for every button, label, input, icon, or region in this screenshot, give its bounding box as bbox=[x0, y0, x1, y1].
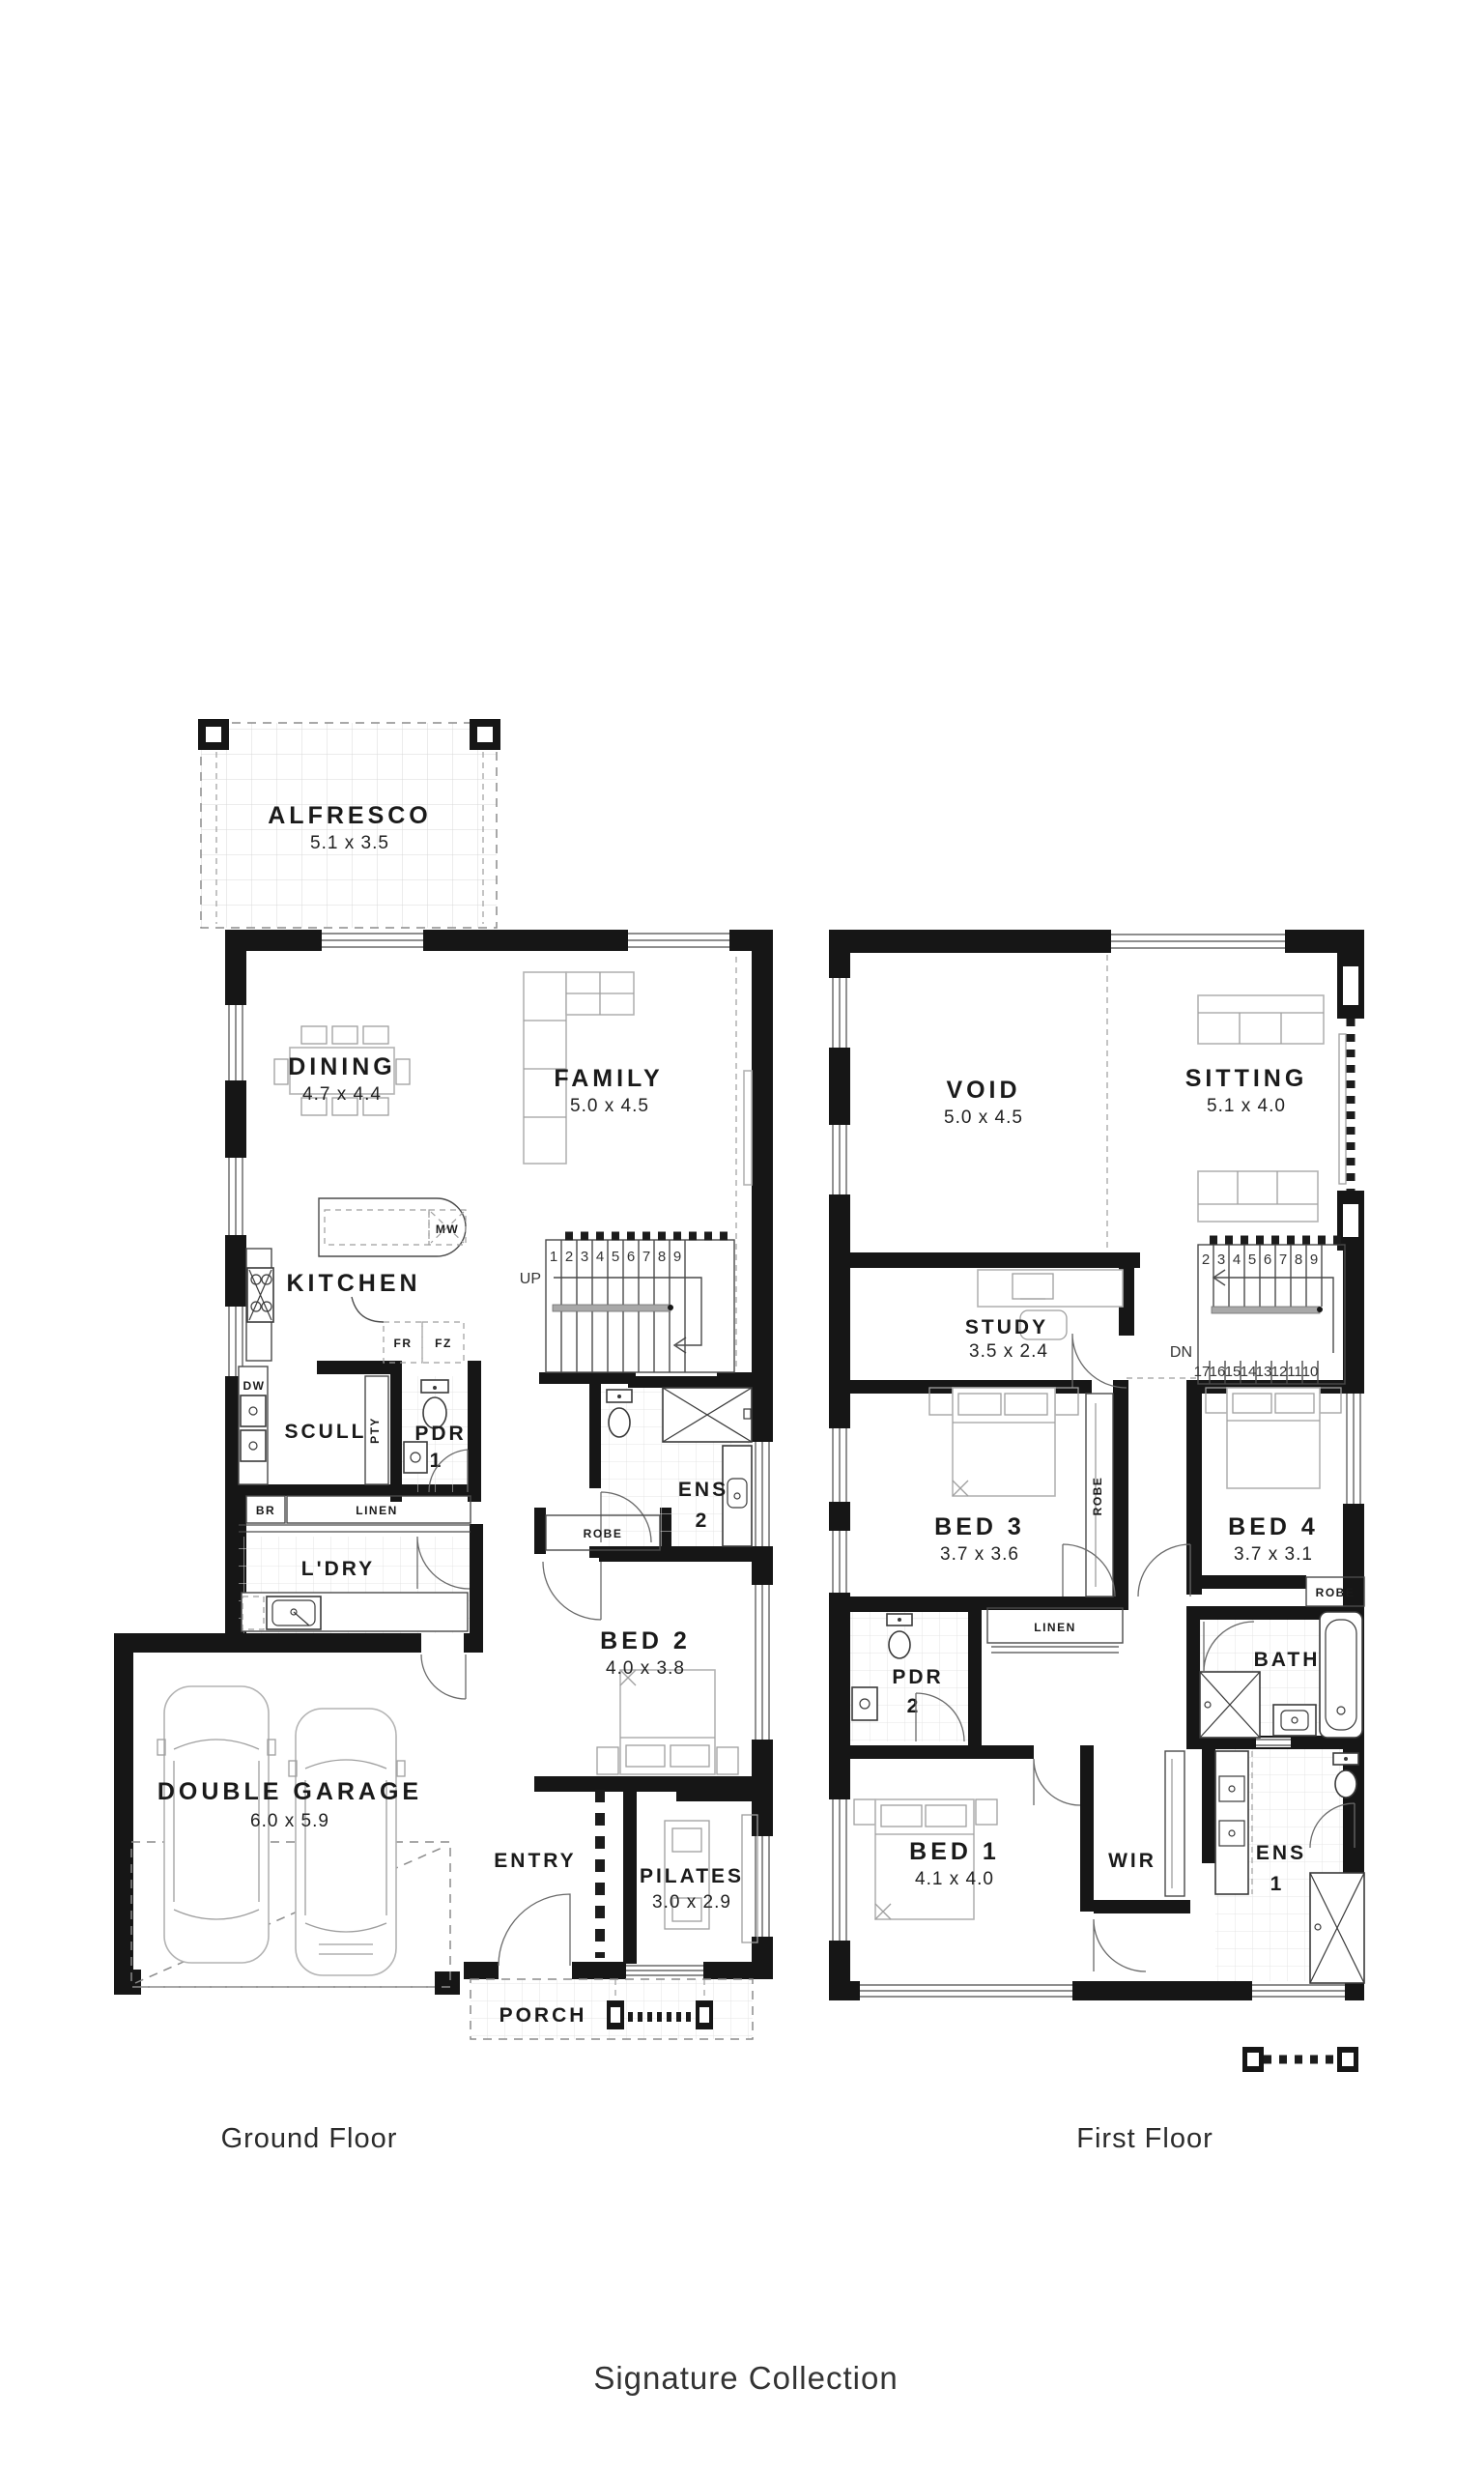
pantry-label: PTY bbox=[368, 1417, 382, 1444]
room-label-bed1: BED 1 bbox=[909, 1838, 1000, 1865]
collection-title: Signature Collection bbox=[593, 2360, 898, 2396]
room-label-pdr1: PDR bbox=[414, 1423, 466, 1445]
room-entry: ENTRY bbox=[494, 1850, 576, 1872]
first-floor-caption: First Floor bbox=[1076, 2123, 1213, 2154]
stair-tread-number: 12 bbox=[1271, 1364, 1288, 1380]
stair-tread-number: 4 bbox=[1233, 1251, 1241, 1268]
robe-label: ROBE bbox=[584, 1527, 623, 1540]
stair-tread-number: 2 bbox=[1202, 1251, 1210, 1268]
ground-floor-plan: ALFRESCO 5.1 x 3.5 bbox=[114, 719, 773, 2039]
room-number-ens1: 1 bbox=[1270, 1873, 1285, 1895]
toilet-icon bbox=[607, 1390, 632, 1437]
room-label-entry: ENTRY bbox=[494, 1850, 576, 1872]
room-pdr1: PDR 1 bbox=[402, 1376, 468, 1492]
bed3-door-icon bbox=[1063, 1544, 1115, 1597]
room-dims-void: 5.0 x 4.5 bbox=[944, 1108, 1023, 1128]
room-label-garage: DOUBLE GARAGE bbox=[157, 1778, 422, 1805]
stairs-first: 2 3 4 5 6 7 8 9 DN 17 16 15 14 13 12 11 … bbox=[1170, 1240, 1345, 1384]
sofa-icon bbox=[1198, 995, 1324, 1044]
linen-label: LINEN bbox=[356, 1504, 398, 1517]
room-garage: DOUBLE GARAGE 6.0 x 5.9 bbox=[114, 1633, 483, 1995]
stair-tread-number: 14 bbox=[1241, 1364, 1257, 1380]
stair-tread-number: 9 bbox=[1310, 1251, 1318, 1268]
toilet-icon bbox=[887, 1614, 912, 1658]
room-bed1: BED 1 4.1 x 4.0 bbox=[854, 1759, 1080, 1919]
stair-tread-number: 8 bbox=[1295, 1251, 1302, 1268]
garage-entry-door-icon bbox=[421, 1654, 466, 1699]
wardrobe-shelf bbox=[1165, 1751, 1184, 1896]
stair-tread-number: 4 bbox=[596, 1249, 604, 1265]
ground-floor-caption: Ground Floor bbox=[221, 2123, 398, 2154]
room-label-porch: PORCH bbox=[499, 2004, 587, 2027]
stair-tread-number: 10 bbox=[1302, 1364, 1319, 1380]
toilet-icon bbox=[1333, 1753, 1358, 1798]
room-dims-bed2: 4.0 x 3.8 bbox=[606, 1658, 685, 1679]
bed-icon bbox=[1206, 1388, 1341, 1488]
stair-direction-label: UP bbox=[520, 1271, 541, 1287]
room-label-alfresco: ALFRESCO bbox=[268, 802, 432, 829]
stair-walkline bbox=[554, 1278, 701, 1353]
room-dims-dining: 4.7 x 4.4 bbox=[302, 1084, 382, 1105]
room-label-laundry: L'DRY bbox=[301, 1558, 375, 1580]
room-void: VOID 5.0 x 4.5 bbox=[944, 955, 1107, 1251]
broom-label: BR bbox=[256, 1504, 275, 1517]
stair-tread-number: 3 bbox=[1217, 1251, 1225, 1268]
room-label-study: STUDY bbox=[965, 1316, 1048, 1338]
first-floor-plan: VOID 5.0 x 4.5 SITTING 5.1 x 4.0 bbox=[829, 930, 1364, 2072]
hall-door-icon bbox=[1138, 1544, 1190, 1597]
shower-icon bbox=[1310, 1873, 1364, 1983]
stairs-ground: 1 2 3 4 5 6 7 8 9 UP bbox=[520, 1236, 734, 1372]
room-label-wir: WIR bbox=[1108, 1850, 1156, 1872]
room-scullery: DW SCULL PTY bbox=[239, 1366, 388, 1484]
tv-icon bbox=[744, 1071, 752, 1185]
dishwasher-label: DW bbox=[243, 1379, 266, 1393]
stair-tread-number: 6 bbox=[627, 1249, 635, 1265]
laundry-sink-icon bbox=[267, 1597, 321, 1629]
floorplan-drawing: ALFRESCO 5.1 x 3.5 bbox=[0, 0, 1484, 2474]
floorplan-page: ALFRESCO 5.1 x 3.5 bbox=[0, 0, 1484, 2474]
shower-icon bbox=[1200, 1672, 1260, 1738]
linen-first: LINEN bbox=[987, 1608, 1123, 1653]
room-bed4: BED 4 3.7 x 3.1 ROBE bbox=[1206, 1388, 1364, 1606]
stair-tread-number: 6 bbox=[1264, 1251, 1271, 1268]
room-number-ens2: 2 bbox=[696, 1510, 710, 1532]
room-label-pilates: PILATES bbox=[640, 1865, 744, 1887]
room-bed2: BED 2 4.0 x 3.8 bbox=[543, 1562, 738, 1774]
stair-handrail bbox=[553, 1305, 671, 1311]
basin-icon bbox=[852, 1687, 877, 1720]
room-ens1: ENS 1 bbox=[1215, 1749, 1364, 1983]
bed-icon bbox=[929, 1388, 1078, 1496]
shower-icon bbox=[663, 1388, 752, 1442]
room-label-bed3: BED 3 bbox=[934, 1513, 1025, 1540]
car-icon bbox=[289, 1709, 405, 1975]
entry-door-icon bbox=[499, 1894, 570, 1966]
stair-tread-number: 3 bbox=[581, 1249, 588, 1265]
room-label-void: VOID bbox=[946, 1077, 1020, 1104]
room-label-ens1: ENS bbox=[1256, 1842, 1306, 1864]
room-ens2: ENS 2 bbox=[601, 1388, 752, 1546]
room-dims-family: 5.0 x 4.5 bbox=[570, 1096, 649, 1116]
porch-threshold bbox=[624, 2012, 696, 2022]
room-label-bath: BATH bbox=[1254, 1649, 1321, 1671]
st air-tread-number: 5 bbox=[1248, 1251, 1256, 1268]
stair-tread-number: 16 bbox=[1210, 1364, 1226, 1380]
room-label-bed4: BED 4 bbox=[1228, 1513, 1319, 1540]
vanity-icon bbox=[1273, 1705, 1316, 1736]
room-dims-sitting: 5.1 x 4.0 bbox=[1207, 1096, 1286, 1116]
wir-door-icon bbox=[1094, 1919, 1146, 1971]
robe-label: ROBE bbox=[1316, 1586, 1356, 1599]
room-dims-bed4: 3.7 x 3.1 bbox=[1234, 1544, 1313, 1565]
bed1-door-icon bbox=[1034, 1759, 1080, 1805]
bed-icon bbox=[597, 1670, 738, 1774]
stair-tread-number: 13 bbox=[1256, 1364, 1272, 1380]
vanity-icon bbox=[1215, 1751, 1248, 1894]
room-dims-bed1: 4.1 x 4.0 bbox=[915, 1869, 994, 1889]
room-label-sitting: SITTING bbox=[1185, 1065, 1308, 1092]
sofa-icon bbox=[1198, 1171, 1318, 1222]
room-label-ens2: ENS bbox=[678, 1479, 728, 1501]
room-laundry: L'DRY bbox=[239, 1537, 470, 1633]
room-pdr2: PDR 2 bbox=[850, 1612, 968, 1741]
room-porch: PORCH bbox=[471, 1979, 753, 2039]
room-family: FAMILY 5.0 x 4.5 bbox=[524, 972, 752, 1185]
robe-label: ROBE bbox=[1091, 1477, 1104, 1516]
bed2-door-icon bbox=[543, 1562, 601, 1620]
room-number-pdr2: 2 bbox=[907, 1695, 922, 1717]
room-label-bed2: BED 2 bbox=[600, 1627, 691, 1654]
room-dims-pilates: 3.0 x 2.9 bbox=[652, 1892, 731, 1913]
stair-handrail bbox=[1212, 1307, 1320, 1313]
stair-tread-number: 5 bbox=[612, 1249, 619, 1265]
freezer-label: FZ bbox=[435, 1337, 452, 1350]
stair-tread-number: 1 bbox=[550, 1249, 557, 1265]
room-dims-bed3: 3.7 x 3.6 bbox=[940, 1544, 1019, 1565]
stair-tread-number: 9 bbox=[673, 1249, 681, 1265]
room-alfresco: ALFRESCO 5.1 x 3.5 bbox=[198, 719, 500, 928]
stair-tread-number: 11 bbox=[1287, 1364, 1302, 1380]
stair-direction-label: DN bbox=[1170, 1344, 1192, 1361]
room-dims-garage: 6.0 x 5.9 bbox=[250, 1811, 329, 1831]
stair-tread-number: 17 bbox=[1194, 1364, 1211, 1380]
room-label-dining: DINING bbox=[288, 1053, 396, 1080]
room-pilates: PILATES 3.0 x 2.9 bbox=[640, 1815, 757, 1942]
room-dims-alfresco: 5.1 x 3.5 bbox=[310, 833, 389, 853]
room-sitting: SITTING 5.1 x 4.0 bbox=[1185, 995, 1346, 1222]
room-label-scullery: SCULL bbox=[285, 1421, 367, 1443]
room-label-kitchen: KITCHEN bbox=[286, 1270, 420, 1297]
stair-tread-number: 8 bbox=[658, 1249, 666, 1265]
bathtub-icon bbox=[1320, 1612, 1362, 1738]
room-study: STUDY 3.5 x 2.4 bbox=[965, 1270, 1127, 1388]
room-dining: DINING 4.7 x 4.4 bbox=[274, 1026, 410, 1115]
basin-icon bbox=[404, 1442, 427, 1473]
toilet-icon bbox=[421, 1380, 448, 1428]
stair-tread-number: 2 bbox=[565, 1249, 573, 1265]
study-door-icon bbox=[1072, 1334, 1127, 1388]
stair-tread-number: 15 bbox=[1225, 1364, 1241, 1380]
stair-tread-number: 7 bbox=[1279, 1251, 1287, 1268]
stair-tread-number: 7 bbox=[642, 1249, 650, 1265]
fridge-label: FR bbox=[394, 1337, 413, 1350]
room-bed3: BED 3 3.7 x 3.6 ROBE bbox=[929, 1388, 1190, 1597]
linen-label: LINEN bbox=[1034, 1621, 1076, 1634]
room-kitchen: MW FR FZ KITCHEN bbox=[246, 1198, 466, 1363]
room-label-family: FAMILY bbox=[554, 1065, 663, 1092]
microwave-label: MW bbox=[436, 1223, 459, 1236]
cooktop-icon bbox=[247, 1268, 273, 1322]
room-bath: BATH bbox=[1200, 1612, 1362, 1738]
room-wir: WIR bbox=[1094, 1751, 1184, 1971]
room-dims-study: 3.5 x 2.4 bbox=[969, 1341, 1048, 1362]
room-label-pdr2: PDR bbox=[892, 1666, 943, 1688]
screen-icon bbox=[1339, 1034, 1346, 1184]
first-floor-posts bbox=[1242, 2047, 1358, 2072]
